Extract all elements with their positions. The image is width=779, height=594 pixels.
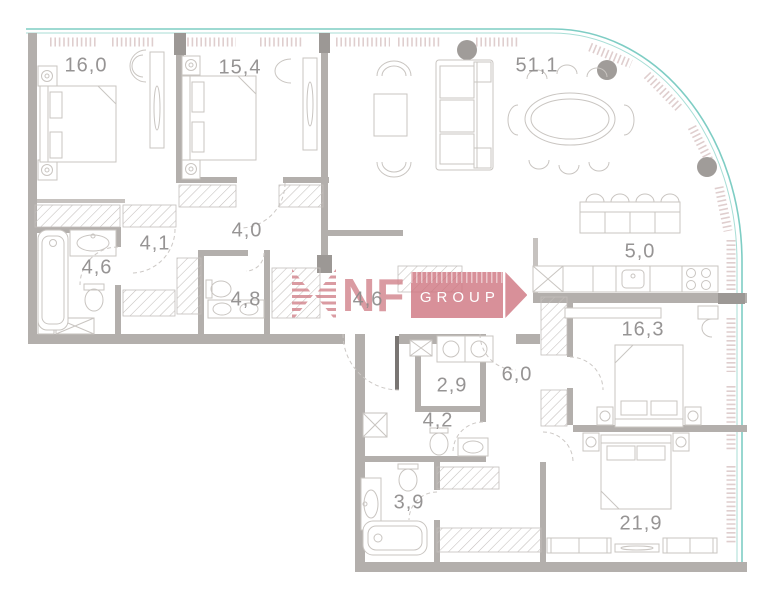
furniture-bathroom-1 [38,230,118,330]
room-area-label-hall-3: 6,0 [502,364,533,387]
room-area-label-bathroom-4: 3,9 [394,492,425,515]
logo-hatch-decoration [411,272,503,283]
logo-group-text: GROUP [411,289,503,306]
room-area-label-bedroom-3: 16,3 [622,319,665,342]
room-area-label-bathroom-3: 4,2 [423,410,454,433]
furniture-laundry [437,336,493,362]
room-area-label-hall-2: 4,0 [232,220,263,243]
room-area-label-laundry: 2,9 [437,375,468,398]
room-area-label-bathroom-1: 4,6 [82,257,113,280]
room-area-label-bedroom-4: 21,9 [620,513,663,536]
furniture-kitchen [533,266,718,292]
furniture-living [374,60,680,233]
room-area-label-bedroom-2: 15,4 [219,57,262,80]
room-area-label-kitchen: 5,0 [625,241,656,264]
room-area-label-bathroom-2: 4,8 [231,289,262,312]
logo-k-glyph [292,269,338,321]
knf-group-watermark: NF GROUP [292,269,527,321]
room-area-label-hall-1: 4,1 [140,233,171,256]
room-area-label-corridor: 4,6 [353,289,384,312]
logo-group-block: GROUP [411,272,503,318]
floor-plan-page: NF GROUP 16,0 15,4 51,1 4,6 4,1 4,0 4,8 … [0,0,779,594]
room-area-label-bedroom-1: 16,0 [65,55,108,78]
room-area-label-living-dining: 51,1 [516,55,559,78]
logo-arrow-icon [505,272,527,318]
